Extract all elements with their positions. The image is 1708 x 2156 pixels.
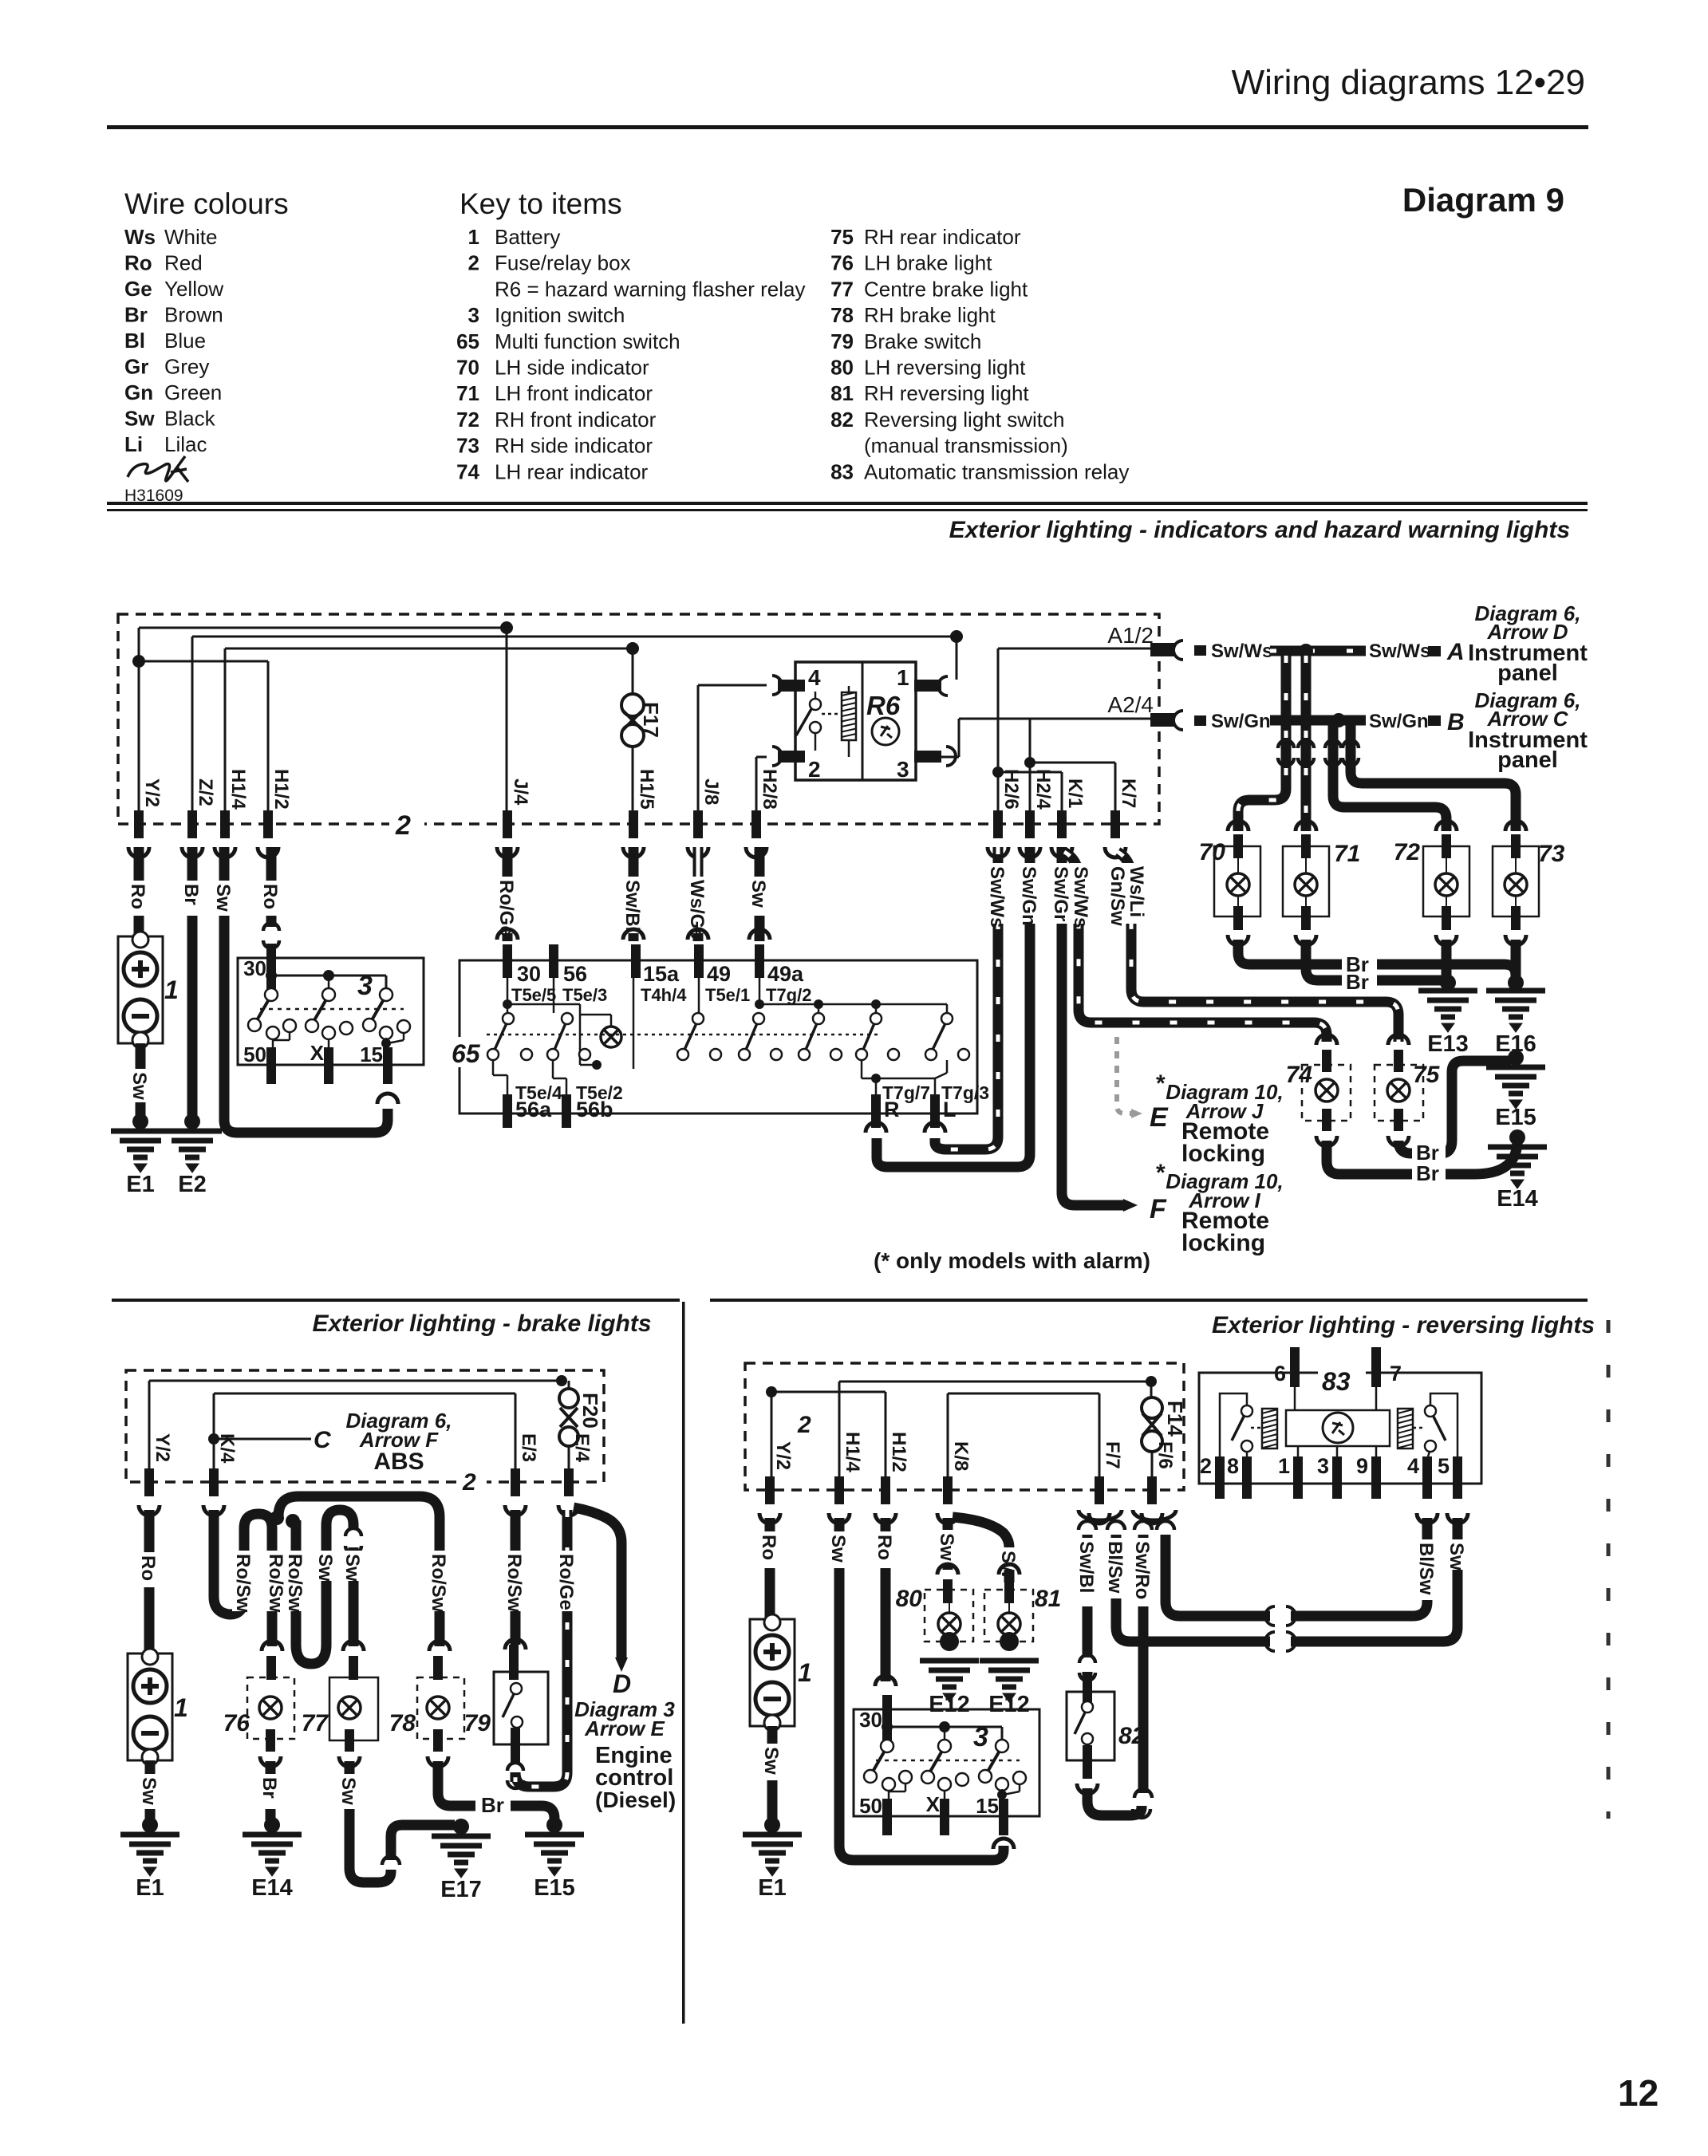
svg-text:Z/2: Z/2 xyxy=(195,778,216,806)
svg-text:Sw: Sw xyxy=(341,1554,363,1582)
svg-text:F/7: F/7 xyxy=(1102,1441,1123,1469)
svg-text:83: 83 xyxy=(1322,1367,1351,1396)
svg-text:Bl/Sw: Bl/Sw xyxy=(1104,1541,1126,1594)
svg-text:Multi function switch: Multi function switch xyxy=(495,329,680,353)
svg-text:Ro: Ro xyxy=(758,1535,779,1560)
svg-text:56: 56 xyxy=(563,962,587,986)
svg-text:F14: F14 xyxy=(1163,1401,1187,1437)
svg-text:30: 30 xyxy=(517,962,541,986)
svg-text:(Diesel): (Diesel) xyxy=(595,1787,676,1812)
svg-text:Sw: Sw xyxy=(124,407,155,431)
svg-text:L: L xyxy=(943,1098,957,1121)
svg-text:78: 78 xyxy=(830,303,854,327)
svg-text:Sw: Sw xyxy=(747,880,769,908)
svg-text:Ro/Sw: Ro/Sw xyxy=(265,1554,286,1613)
svg-text:F17: F17 xyxy=(639,702,663,738)
svg-text:76: 76 xyxy=(223,1710,250,1736)
svg-text:79: 79 xyxy=(830,329,854,353)
svg-text:75: 75 xyxy=(830,225,854,249)
svg-text:65: 65 xyxy=(456,329,479,353)
svg-text:Wire colours: Wire colours xyxy=(124,187,289,220)
svg-text:Sw/Gn: Sw/Gn xyxy=(1211,711,1271,732)
svg-text:E: E xyxy=(1150,1102,1169,1133)
svg-text:F20: F20 xyxy=(578,1393,602,1429)
svg-text:H1/2: H1/2 xyxy=(888,1432,909,1472)
svg-text:Ro: Ro xyxy=(124,251,152,275)
svg-text:E15: E15 xyxy=(534,1875,575,1901)
svg-text:T5e/5: T5e/5 xyxy=(511,985,556,1005)
svg-text:30: 30 xyxy=(243,956,266,980)
svg-text:E/3: E/3 xyxy=(518,1433,539,1462)
svg-text:Ro/Sw: Ro/Sw xyxy=(503,1554,525,1613)
svg-text:R: R xyxy=(884,1098,900,1121)
svg-text:Arrow E: Arrow E xyxy=(584,1717,665,1740)
svg-text:*: * xyxy=(1156,1070,1166,1097)
svg-text:Sw/Ro: Sw/Ro xyxy=(1131,1541,1153,1599)
svg-text:Sw: Sw xyxy=(936,1533,957,1561)
svg-text:6: 6 xyxy=(1274,1362,1286,1385)
svg-text:5: 5 xyxy=(1438,1454,1450,1478)
svg-text:Sw/Gn: Sw/Gn xyxy=(1018,866,1039,926)
svg-text:K/4: K/4 xyxy=(216,1433,238,1464)
svg-text:locking: locking xyxy=(1181,1141,1265,1167)
svg-text:Li: Li xyxy=(124,432,143,456)
svg-text:Wiring diagrams 12•29: Wiring diagrams 12•29 xyxy=(1232,63,1585,102)
svg-text:1: 1 xyxy=(174,1693,188,1722)
svg-text:4: 4 xyxy=(1407,1454,1419,1478)
svg-text:2: 2 xyxy=(808,757,821,782)
svg-text:H1/2: H1/2 xyxy=(270,769,292,810)
svg-text:77: 77 xyxy=(302,1710,329,1736)
svg-text:White: White xyxy=(164,225,217,249)
svg-text:C: C xyxy=(314,1427,332,1453)
svg-text:ABS: ABS xyxy=(373,1449,424,1475)
svg-text:H1/4: H1/4 xyxy=(227,769,249,810)
svg-text:B: B xyxy=(1447,709,1465,735)
svg-text:E12: E12 xyxy=(988,1692,1030,1717)
svg-text:K/1: K/1 xyxy=(1064,778,1086,808)
svg-text:RH reversing light: RH reversing light xyxy=(864,381,1029,405)
svg-text:Y/2: Y/2 xyxy=(772,1441,794,1470)
svg-text:2: 2 xyxy=(462,1469,476,1496)
svg-text:Sw: Sw xyxy=(138,1777,160,1805)
svg-text:3: 3 xyxy=(1317,1454,1329,1478)
svg-text:Sw/Gr: Sw/Gr xyxy=(1050,866,1071,921)
svg-text:7: 7 xyxy=(1390,1362,1402,1385)
svg-text:A1/2: A1/2 xyxy=(1107,623,1154,648)
svg-text:*: * xyxy=(1156,1160,1166,1186)
svg-text:E/4: E/4 xyxy=(571,1433,593,1463)
svg-text:Y/2: Y/2 xyxy=(141,778,163,807)
svg-text:72: 72 xyxy=(456,408,479,432)
svg-text:Centre brake light: Centre brake light xyxy=(864,277,1028,301)
svg-text:77: 77 xyxy=(830,277,854,301)
svg-text:Automatic transmission relay: Automatic transmission relay xyxy=(864,459,1129,483)
svg-text:73: 73 xyxy=(1538,841,1565,867)
svg-text:E1: E1 xyxy=(758,1875,786,1901)
svg-text:T7g/2: T7g/2 xyxy=(766,985,811,1005)
svg-text:Ws/Li: Ws/Li xyxy=(1126,866,1147,917)
svg-text:3: 3 xyxy=(468,303,479,327)
svg-text:E13: E13 xyxy=(1427,1031,1469,1057)
svg-text:30: 30 xyxy=(859,1708,882,1732)
svg-text:Sw: Sw xyxy=(760,1747,782,1775)
svg-text:Sw/Ws: Sw/Ws xyxy=(1369,640,1430,662)
svg-text:Green: Green xyxy=(164,380,222,404)
svg-text:Lilac: Lilac xyxy=(164,432,207,456)
svg-text:panel: panel xyxy=(1497,747,1558,773)
svg-text:82: 82 xyxy=(830,408,854,432)
svg-text:15: 15 xyxy=(976,1794,999,1818)
svg-text:Diagram 9: Diagram 9 xyxy=(1402,181,1564,219)
svg-text:56b: 56b xyxy=(576,1098,613,1121)
svg-text:50: 50 xyxy=(243,1043,266,1066)
svg-text:15: 15 xyxy=(360,1043,383,1066)
svg-text:Ro/Sw: Ro/Sw xyxy=(232,1554,254,1613)
svg-text:T5e/1: T5e/1 xyxy=(705,985,750,1005)
svg-text:Yellow: Yellow xyxy=(164,277,223,301)
svg-text:locking: locking xyxy=(1181,1230,1265,1256)
svg-text:Sw: Sw xyxy=(827,1535,849,1563)
svg-text:12: 12 xyxy=(1618,2072,1659,2114)
svg-text:Sw/Bl: Sw/Bl xyxy=(621,880,643,932)
svg-text:Sw: Sw xyxy=(337,1777,359,1805)
svg-text:Y/2: Y/2 xyxy=(152,1433,173,1462)
svg-text:K/8: K/8 xyxy=(950,1441,972,1471)
svg-text:Br: Br xyxy=(124,303,148,327)
svg-text:4: 4 xyxy=(808,665,821,690)
svg-text:80: 80 xyxy=(830,356,854,380)
svg-text:H1/4: H1/4 xyxy=(842,1432,863,1472)
svg-text:A: A xyxy=(1446,639,1465,665)
svg-text:RH rear indicator: RH rear indicator xyxy=(864,225,1021,249)
svg-text:Ro/Ge: Ro/Ge xyxy=(555,1554,577,1610)
svg-text:Black: Black xyxy=(164,407,216,431)
svg-text:RH front indicator: RH front indicator xyxy=(495,408,657,432)
svg-text:2: 2 xyxy=(468,251,479,275)
svg-text:Brown: Brown xyxy=(164,303,223,327)
svg-text:Sw/Ws: Sw/Ws xyxy=(1070,866,1091,928)
svg-text:1: 1 xyxy=(164,976,179,1004)
svg-text:(manual transmission): (manual transmission) xyxy=(864,434,1068,458)
svg-text:X: X xyxy=(310,1041,325,1065)
svg-text:Sw: Sw xyxy=(314,1554,336,1582)
svg-text:Sw: Sw xyxy=(128,1072,150,1100)
svg-text:LH side indicator: LH side indicator xyxy=(495,356,649,380)
svg-text:F: F xyxy=(1150,1194,1167,1224)
svg-text:Ws: Ws xyxy=(124,225,156,249)
svg-text:Gn/Sw: Gn/Sw xyxy=(1106,866,1128,926)
svg-text:Exterior lighting - indicators: Exterior lighting - indicators and hazar… xyxy=(949,517,1570,543)
svg-text:Exterior lighting - brake ligh: Exterior lighting - brake lights xyxy=(312,1311,651,1337)
svg-text:1: 1 xyxy=(798,1658,812,1687)
svg-text:H2/6: H2/6 xyxy=(1000,769,1022,810)
svg-text:Br: Br xyxy=(1416,1161,1439,1185)
svg-text:LH reversing light: LH reversing light xyxy=(864,356,1026,380)
svg-text:80: 80 xyxy=(896,1586,923,1612)
svg-text:Ro/Sw: Ro/Sw xyxy=(428,1554,449,1613)
svg-text:Gn: Gn xyxy=(124,380,153,404)
svg-text:74: 74 xyxy=(1286,1062,1313,1088)
svg-text:R6: R6 xyxy=(866,691,901,720)
svg-text:74: 74 xyxy=(456,459,479,483)
svg-text:LH front indicator: LH front indicator xyxy=(495,381,653,405)
svg-text:56a: 56a xyxy=(515,1098,552,1121)
svg-text:Ignition switch: Ignition switch xyxy=(495,303,625,327)
svg-text:1: 1 xyxy=(897,665,909,690)
svg-text:E15: E15 xyxy=(1495,1105,1536,1130)
svg-text:70: 70 xyxy=(1199,839,1226,865)
svg-text:Grey: Grey xyxy=(164,355,209,379)
svg-text:LH rear indicator: LH rear indicator xyxy=(495,459,649,483)
svg-text:79: 79 xyxy=(464,1710,491,1736)
svg-text:Gr: Gr xyxy=(124,355,148,379)
svg-text:Ro: Ro xyxy=(874,1535,895,1560)
svg-text:2: 2 xyxy=(1200,1454,1212,1478)
svg-text:RH side indicator: RH side indicator xyxy=(495,434,653,458)
svg-text:Sw/Ws: Sw/Ws xyxy=(1211,640,1272,662)
svg-text:E2: E2 xyxy=(178,1172,206,1197)
svg-text:Ro: Ro xyxy=(137,1555,159,1581)
svg-text:Key to items: Key to items xyxy=(460,187,622,220)
svg-text:(* only models with alarm): (* only models with alarm) xyxy=(874,1248,1150,1273)
svg-text:1: 1 xyxy=(468,225,479,249)
svg-text:Br: Br xyxy=(258,1777,280,1799)
svg-text:71: 71 xyxy=(456,381,479,405)
svg-text:2: 2 xyxy=(797,1412,811,1438)
svg-text:E14: E14 xyxy=(251,1875,293,1901)
svg-text:E12: E12 xyxy=(929,1692,970,1717)
svg-text:LH brake light: LH brake light xyxy=(864,251,992,275)
svg-text:15a: 15a xyxy=(643,962,680,986)
svg-text:A2/4: A2/4 xyxy=(1107,692,1154,717)
svg-text:1: 1 xyxy=(1278,1454,1290,1478)
svg-text:Sw: Sw xyxy=(212,884,234,912)
svg-text:75: 75 xyxy=(1413,1062,1441,1088)
svg-text:65: 65 xyxy=(452,1039,481,1068)
svg-text:70: 70 xyxy=(456,356,479,380)
svg-text:73: 73 xyxy=(456,434,479,458)
svg-text:T4h/4: T4h/4 xyxy=(641,985,687,1005)
svg-text:R6 = hazard warning flasher re: R6 = hazard warning flasher relay xyxy=(495,277,805,301)
svg-text:81: 81 xyxy=(1035,1586,1061,1612)
svg-text:83: 83 xyxy=(830,459,854,483)
svg-text:Br: Br xyxy=(481,1793,504,1817)
svg-text:3: 3 xyxy=(897,757,909,782)
svg-text:8: 8 xyxy=(1227,1454,1239,1478)
svg-text:Bl: Bl xyxy=(124,329,145,353)
svg-text:71: 71 xyxy=(1334,841,1360,867)
svg-text:H1/5: H1/5 xyxy=(636,769,657,810)
svg-text:X: X xyxy=(926,1792,941,1816)
svg-text:J/8: J/8 xyxy=(700,778,722,805)
svg-text:81: 81 xyxy=(830,381,854,405)
svg-text:E14: E14 xyxy=(1497,1186,1538,1212)
svg-text:E1: E1 xyxy=(126,1172,154,1197)
svg-text:E1: E1 xyxy=(136,1875,164,1901)
svg-text:D: D xyxy=(613,1669,631,1698)
svg-text:78: 78 xyxy=(389,1710,416,1736)
svg-text:RH brake light: RH brake light xyxy=(864,303,996,327)
svg-text:2: 2 xyxy=(395,810,411,841)
svg-text:49a: 49a xyxy=(767,962,804,986)
svg-text:E17: E17 xyxy=(440,1877,482,1902)
svg-text:Ro: Ro xyxy=(127,884,148,909)
svg-text:Battery: Battery xyxy=(495,225,560,249)
svg-text:Ge: Ge xyxy=(124,277,152,301)
svg-text:T5e/3: T5e/3 xyxy=(562,985,607,1005)
svg-text:49: 49 xyxy=(707,962,731,986)
svg-text:9: 9 xyxy=(1356,1454,1368,1478)
svg-text:F/6: F/6 xyxy=(1154,1441,1176,1469)
svg-text:Ro: Ro xyxy=(259,884,281,909)
svg-text:76: 76 xyxy=(830,251,854,275)
svg-text:J/4: J/4 xyxy=(510,778,531,806)
svg-text:Sw/Bl: Sw/Bl xyxy=(1075,1541,1097,1593)
svg-text:Sw/Ws: Sw/Ws xyxy=(986,866,1008,928)
svg-text:panel: panel xyxy=(1497,660,1558,686)
svg-text:Sw/Gn: Sw/Gn xyxy=(1369,711,1429,732)
svg-text:Fuse/relay box: Fuse/relay box xyxy=(495,251,631,275)
svg-text:50: 50 xyxy=(859,1794,882,1818)
svg-text:Br: Br xyxy=(180,884,202,905)
svg-text:Exterior lighting - reversing: Exterior lighting - reversing lights xyxy=(1212,1312,1595,1338)
svg-text:Red: Red xyxy=(164,251,203,275)
svg-text:Reversing light switch: Reversing light switch xyxy=(864,408,1064,432)
svg-text:K/7: K/7 xyxy=(1118,778,1139,808)
svg-text:Bl/Sw: Bl/Sw xyxy=(1415,1543,1437,1595)
svg-text:H2/4: H2/4 xyxy=(1032,769,1054,810)
svg-text:Br: Br xyxy=(1346,970,1369,994)
svg-text:Blue: Blue xyxy=(164,329,206,353)
svg-text:72: 72 xyxy=(1394,839,1421,865)
svg-text:Sw: Sw xyxy=(1446,1543,1467,1571)
svg-text:Ro/Sw: Ro/Sw xyxy=(284,1554,306,1613)
svg-text:H2/8: H2/8 xyxy=(759,769,780,810)
svg-text:Brake switch: Brake switch xyxy=(864,329,981,353)
